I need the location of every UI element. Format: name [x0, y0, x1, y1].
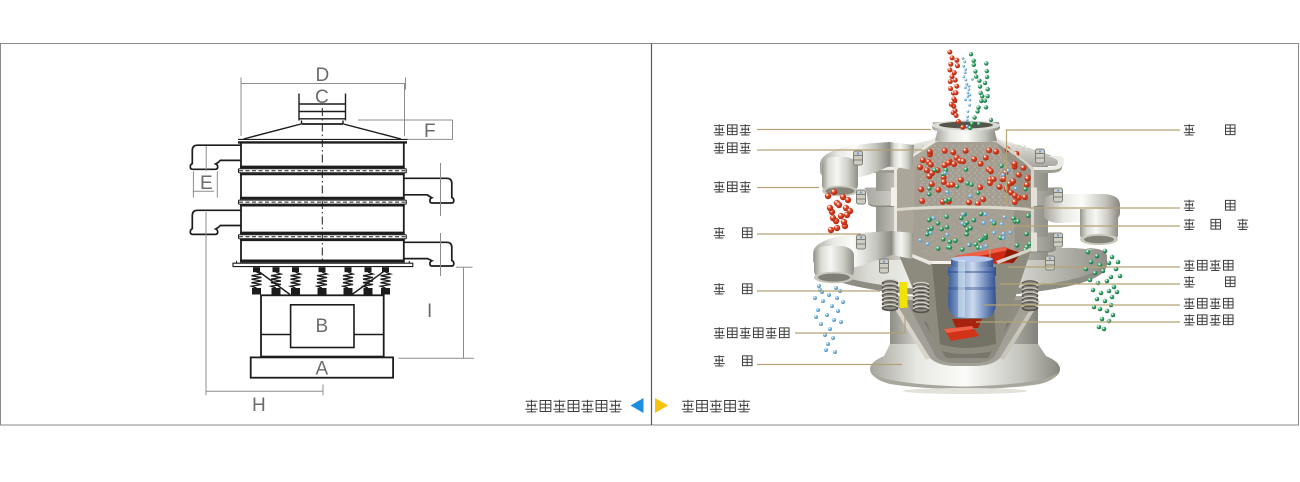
- svg-text:C: C: [315, 87, 329, 108]
- svg-text:B: B: [316, 316, 329, 337]
- svg-text:D: D: [316, 65, 330, 86]
- svg-text:H: H: [252, 395, 266, 416]
- svg-text:F: F: [424, 121, 436, 142]
- svg-text:I: I: [427, 301, 432, 322]
- svg-text:E: E: [200, 173, 213, 194]
- svg-text:A: A: [316, 359, 329, 380]
